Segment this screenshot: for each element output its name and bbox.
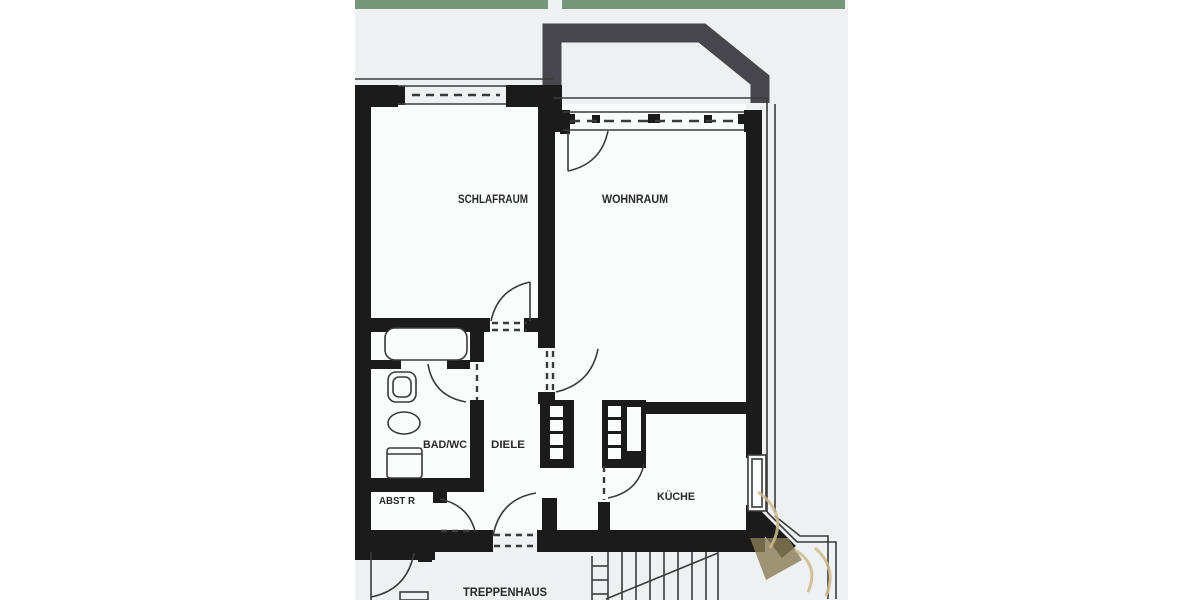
wall-kitchen-left-stub (598, 502, 610, 532)
green-strip-left (355, 0, 548, 9)
green-strip-right (562, 0, 845, 9)
bathtub (385, 328, 467, 360)
window-cap-wohnraum-right (744, 110, 762, 132)
room-label-abstr: ABST R (379, 496, 416, 507)
wall-room-divider-upper (538, 107, 555, 348)
room-label-treppenhaus: TREPPENHAUS (463, 587, 547, 599)
toilet (388, 412, 420, 434)
green-strip (355, 0, 845, 9)
wall-tub-stub-left (371, 360, 401, 369)
shaft-slot (627, 407, 641, 451)
window-mullion (738, 114, 746, 124)
shaft-cell (608, 434, 621, 445)
wall-top-left (355, 85, 398, 107)
room-label-bad-wc: BAD/WC (423, 439, 467, 451)
wall-kitchen-top (642, 402, 746, 414)
wall-bottom-right (537, 530, 765, 552)
shaft-cell (550, 406, 563, 417)
shaft-cell (608, 420, 621, 431)
room-label-wohnraum: WOHNRAUM (602, 192, 668, 206)
wall-stairhall-stub (418, 552, 432, 562)
room-label-schlafraum: SCHLAFRAUM (458, 192, 528, 206)
room-label-kueche: KÜCHE (657, 490, 695, 503)
room-label-diele: DIELE (491, 439, 525, 451)
wall-bath-bottom (355, 478, 484, 492)
wall-tub-stub-right (447, 360, 470, 369)
wall-bath-top-right (524, 318, 555, 332)
shaft-cell (550, 434, 563, 445)
shaft-cell (550, 448, 563, 459)
window-cap-schlafraum-right (507, 86, 516, 105)
window-mullion (565, 114, 575, 124)
window-cap-schlafraum-left (396, 86, 405, 105)
kitchen-window (748, 455, 766, 511)
floorplan-scan: SCHLAFRAUM WOHNRAUM BAD/WC DIELE ABST R … (0, 0, 1200, 600)
wall-bottom-left (355, 530, 493, 552)
washing-machine (387, 448, 422, 478)
sink-basin (393, 377, 411, 397)
floorplan-svg: SCHLAFRAUM WOHNRAUM BAD/WC DIELE ABST R … (0, 0, 1200, 600)
shaft-cell (550, 420, 563, 431)
wall-bath-right-upper (470, 332, 484, 362)
wall-entrance-stub (542, 498, 557, 532)
wall-right-upper (746, 128, 762, 458)
shaft-cell (608, 448, 621, 459)
shaft-cell (608, 406, 621, 417)
